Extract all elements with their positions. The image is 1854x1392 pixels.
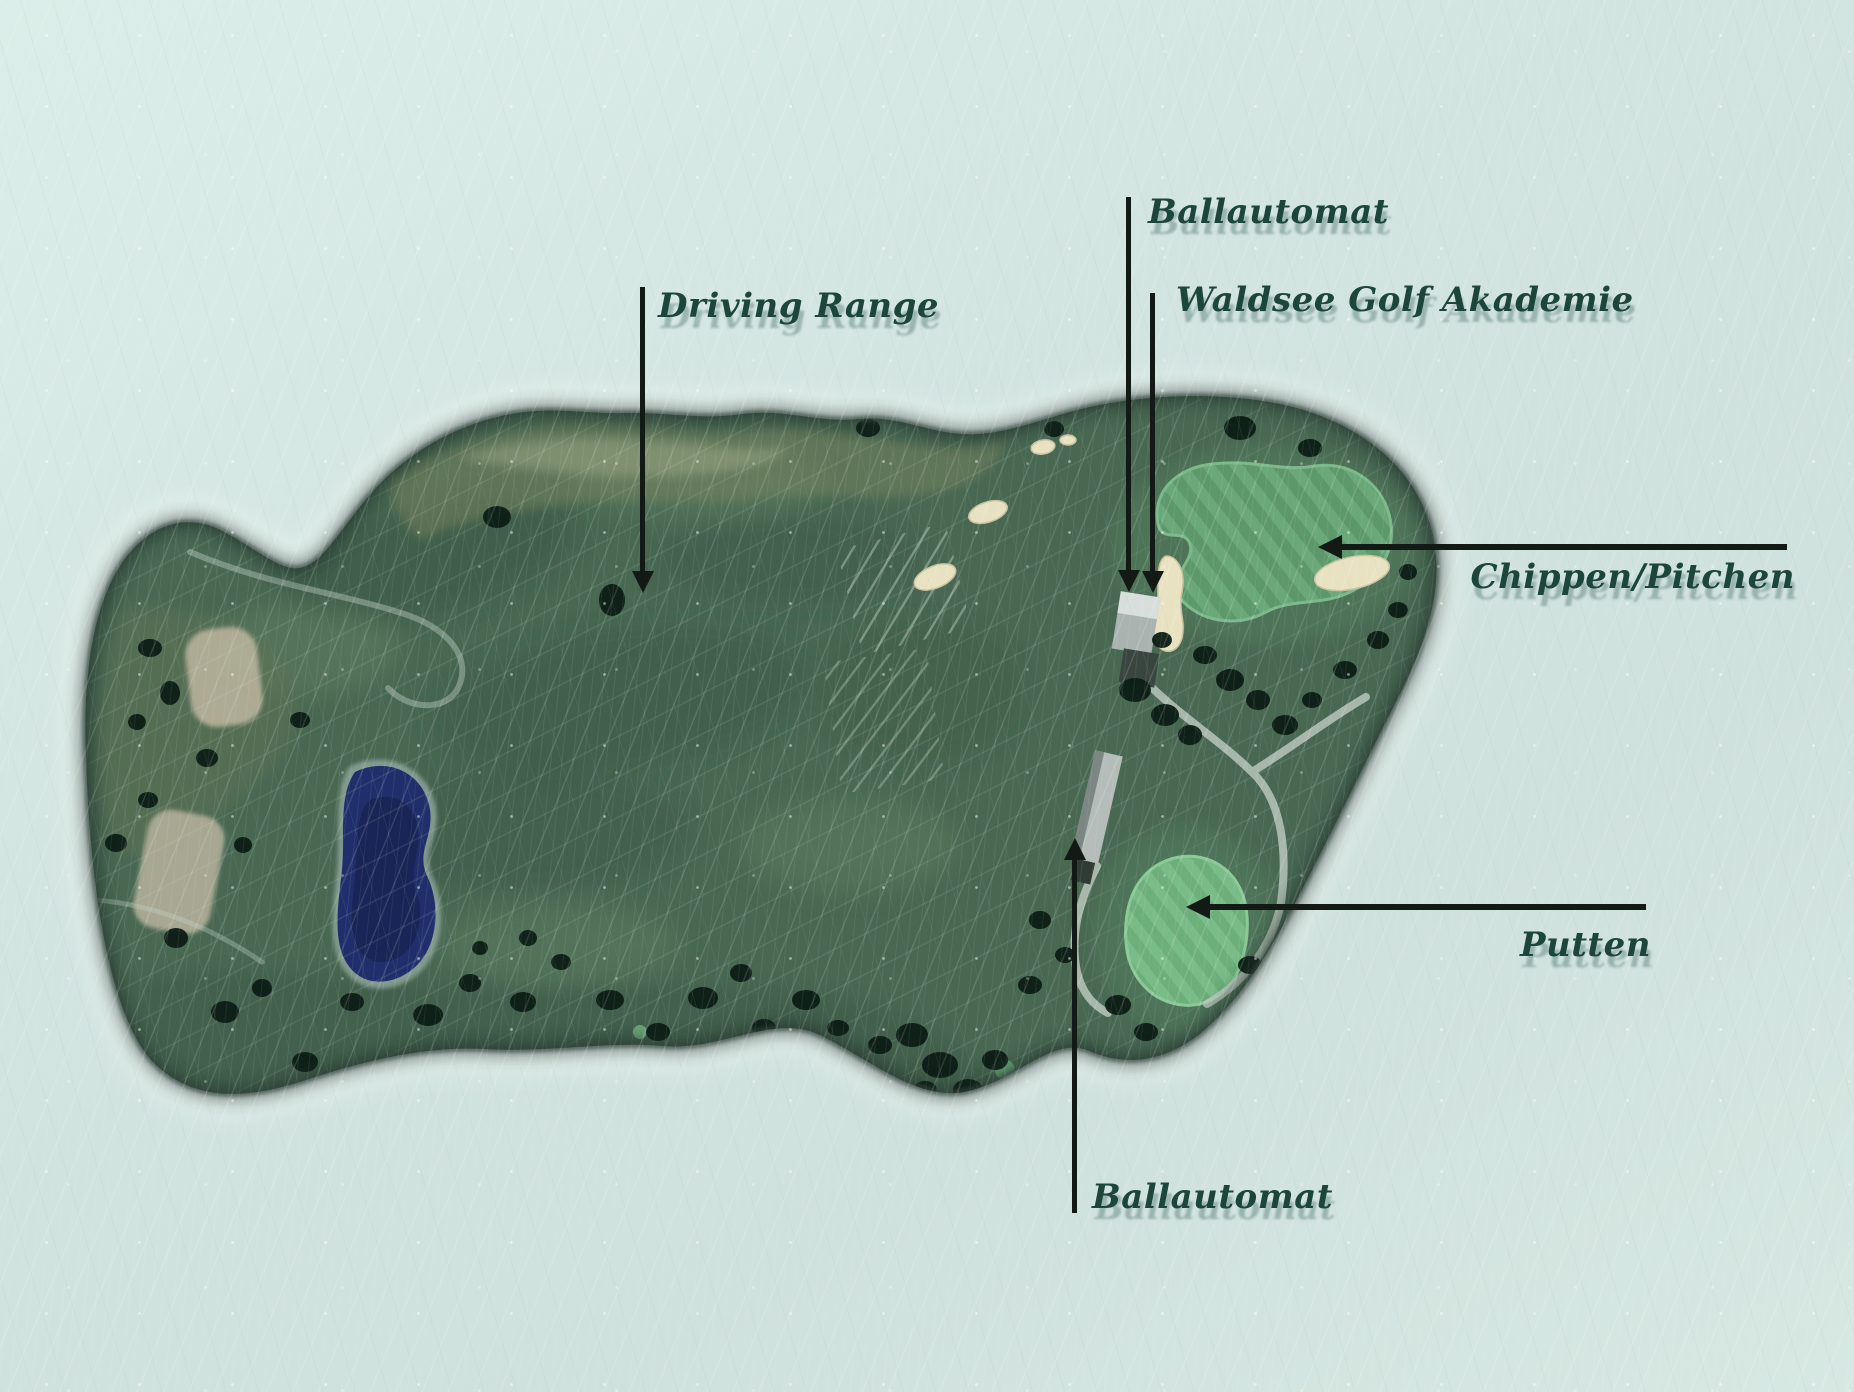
arrow-ballautomat-bottom <box>1072 860 1077 1213</box>
label-ballautomat-top: Ballautomat <box>1148 194 1389 231</box>
arrow-chippen-pitchen <box>1342 544 1787 550</box>
arrowhead-left-icon <box>1318 535 1342 559</box>
driving-range-field <box>80 380 1460 1131</box>
label-putten: Putten <box>1520 927 1651 964</box>
label-chippen-pitchen: Chippen/Pitchen <box>1471 559 1795 596</box>
arrowhead-down-icon <box>1142 571 1164 593</box>
poster: Ballautomat Waldsee Golf Akademie Drivin… <box>0 0 1854 1392</box>
bunker-top-2 <box>1060 435 1076 445</box>
arrow-putten <box>1210 904 1646 910</box>
arrow-ballautomat-top <box>1126 197 1131 570</box>
label-driving-range: Driving Range <box>658 288 939 325</box>
label-waldsee-akademie: Waldsee Golf Akademie <box>1176 282 1634 319</box>
label-ballautomat-bottom: Ballautomat <box>1092 1179 1333 1216</box>
arrowhead-down-icon <box>1118 570 1140 592</box>
arrow-waldsee-akademie <box>1150 293 1155 571</box>
range-target-grid-lower <box>823 648 944 793</box>
arrowhead-up-icon <box>1064 838 1086 860</box>
arrowhead-down-icon <box>632 571 654 593</box>
putting-green <box>1126 856 1248 1005</box>
arrowhead-left-icon <box>1186 895 1210 919</box>
arrow-driving-range <box>640 287 645 571</box>
aerial-course-map <box>0 0 1854 1392</box>
